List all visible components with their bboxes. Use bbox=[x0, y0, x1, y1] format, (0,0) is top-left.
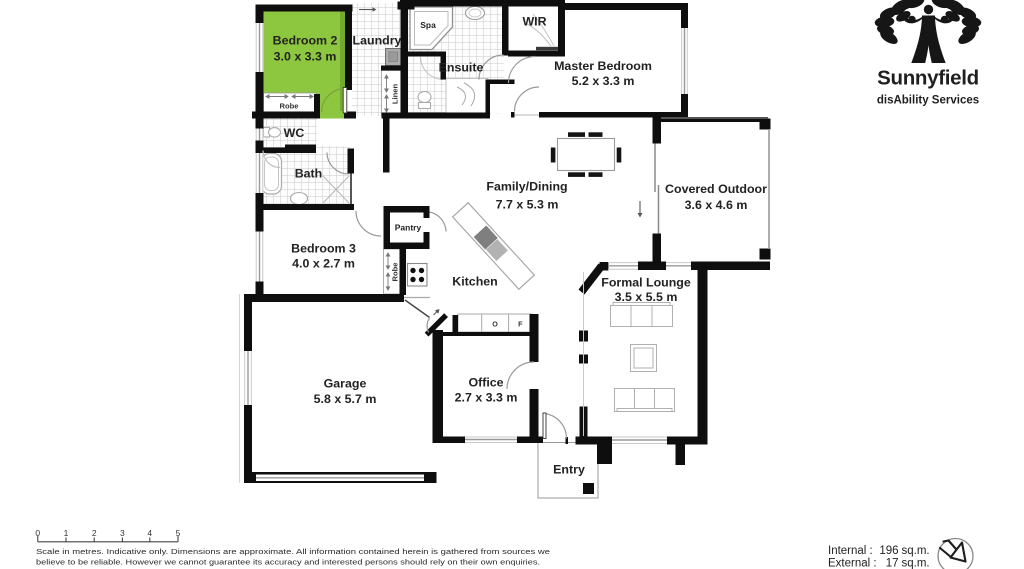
svg-text:believe to be reliable. Howev: believe to be reliable. However we canno… bbox=[36, 558, 540, 567]
svg-text:2.7 x 3.3 m: 2.7 x 3.3 m bbox=[455, 391, 518, 405]
svg-text:5.8 x 5.7 m: 5.8 x 5.7 m bbox=[314, 392, 377, 406]
svg-text:WIR: WIR bbox=[522, 15, 546, 29]
svg-text:Formal Lounge: Formal Lounge bbox=[601, 276, 691, 290]
svg-text:sq.m.: sq.m. bbox=[902, 558, 930, 569]
svg-text:Pantry: Pantry bbox=[395, 223, 422, 233]
svg-text:Linen: Linen bbox=[391, 84, 400, 105]
svg-text:5: 5 bbox=[176, 528, 181, 538]
svg-text:3.5 x 5.5 m: 3.5 x 5.5 m bbox=[615, 290, 678, 304]
svg-text:3.0 x 3.3 m: 3.0 x 3.3 m bbox=[274, 50, 337, 64]
svg-text:17: 17 bbox=[886, 558, 899, 569]
svg-text:4.0 x 2.7 m: 4.0 x 2.7 m bbox=[292, 257, 355, 271]
svg-text:Laundry: Laundry bbox=[353, 34, 402, 48]
svg-text:O: O bbox=[492, 320, 498, 329]
svg-text:0: 0 bbox=[35, 528, 40, 538]
svg-text:Robe: Robe bbox=[391, 263, 400, 282]
svg-text:3: 3 bbox=[120, 528, 125, 538]
svg-text:Robe: Robe bbox=[280, 102, 299, 111]
svg-text:Entry: Entry bbox=[553, 463, 585, 477]
svg-text:Scale in metres. Indicative o: Scale in metres. Indicative only. Dimens… bbox=[36, 547, 550, 556]
svg-text:Ensuite: Ensuite bbox=[439, 61, 484, 75]
svg-text:WC: WC bbox=[284, 126, 305, 140]
svg-text:Master Bedroom: Master Bedroom bbox=[554, 59, 652, 73]
svg-text:Bedroom 2: Bedroom 2 bbox=[273, 34, 338, 48]
svg-text:4: 4 bbox=[147, 528, 152, 538]
svg-text:2: 2 bbox=[92, 528, 97, 538]
svg-text:7.7 x 5.3 m: 7.7 x 5.3 m bbox=[496, 198, 559, 212]
svg-text:Spa: Spa bbox=[420, 20, 436, 30]
svg-text:Bath: Bath bbox=[295, 167, 323, 181]
svg-text:Internal :: Internal : bbox=[828, 545, 873, 557]
svg-text:disAbility Services: disAbility Services bbox=[877, 95, 979, 107]
svg-text:Office: Office bbox=[468, 376, 503, 390]
svg-text:Kitchen: Kitchen bbox=[452, 275, 497, 289]
svg-text:sq.m.: sq.m. bbox=[902, 545, 930, 557]
svg-text:Covered Outdoor: Covered Outdoor bbox=[665, 182, 767, 196]
svg-text:5.2 x 3.3 m: 5.2 x 3.3 m bbox=[572, 74, 635, 88]
svg-text:1: 1 bbox=[64, 528, 69, 538]
svg-text:Bedroom 3: Bedroom 3 bbox=[291, 242, 356, 256]
svg-text:Garage: Garage bbox=[324, 377, 367, 391]
svg-text:F: F bbox=[518, 320, 523, 329]
svg-text:3.6 x 4.6 m: 3.6 x 4.6 m bbox=[685, 198, 748, 212]
svg-text:196: 196 bbox=[879, 545, 898, 557]
svg-text:Sunnyfield: Sunnyfield bbox=[877, 67, 979, 90]
svg-text:Family/Dining: Family/Dining bbox=[486, 180, 567, 194]
svg-text:External :: External : bbox=[828, 558, 877, 569]
